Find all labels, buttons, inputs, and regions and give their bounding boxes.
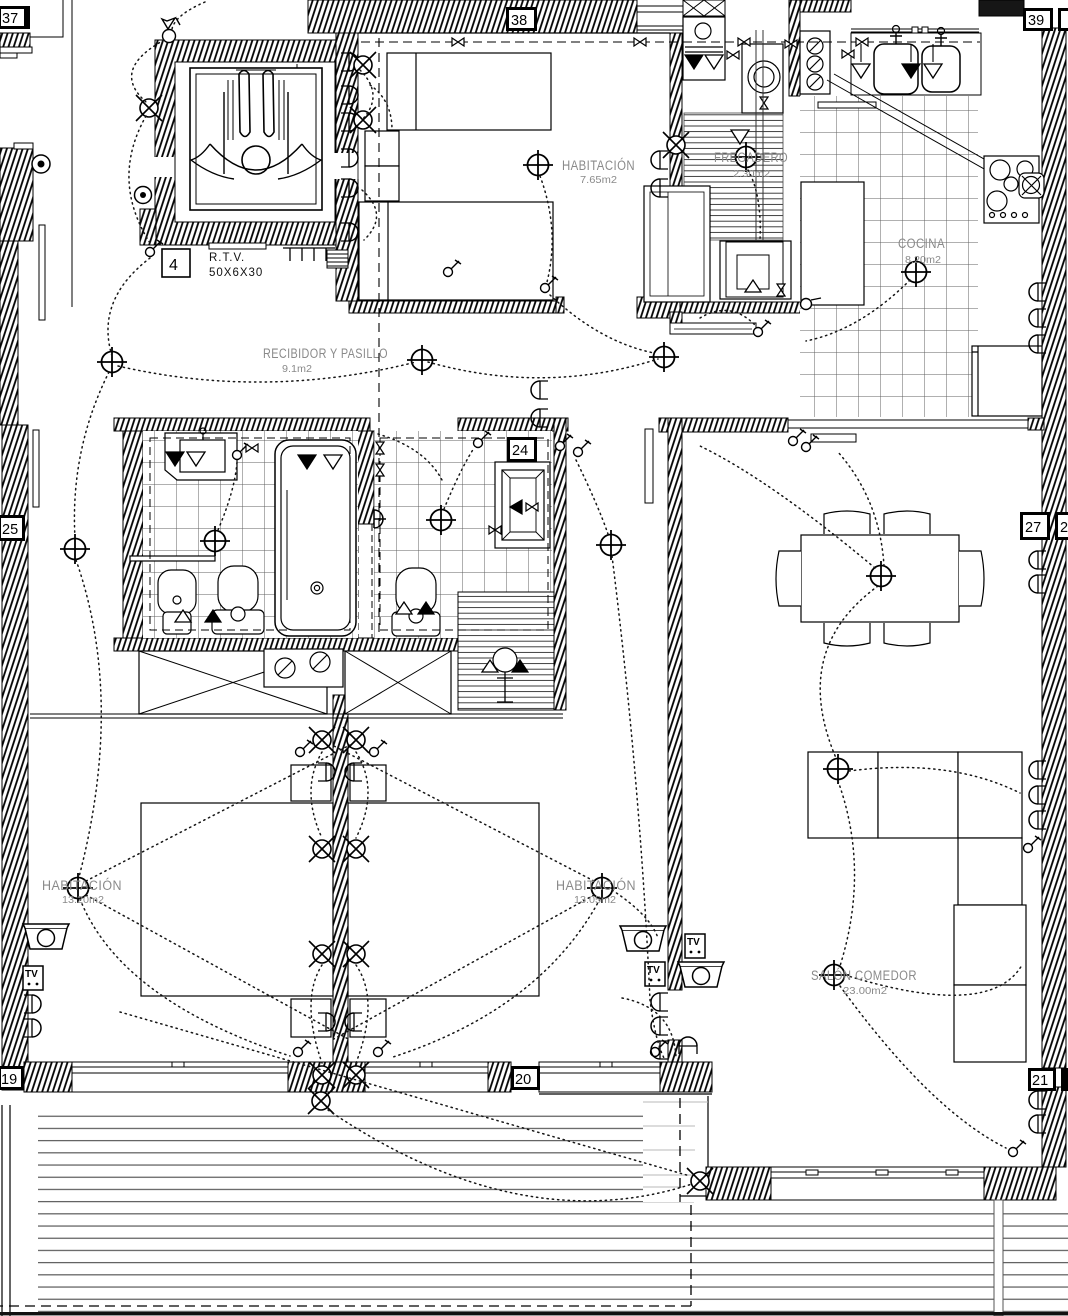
svg-text:9.1m2: 9.1m2 bbox=[282, 363, 312, 375]
svg-text:23.00m2: 23.00m2 bbox=[843, 985, 887, 997]
svg-text:R.T.V.: R.T.V. bbox=[209, 252, 245, 264]
svg-text:8.20m2: 8.20m2 bbox=[905, 254, 941, 266]
svg-text:50X6X30: 50X6X30 bbox=[209, 267, 263, 279]
svg-text:FREGADERO: FREGADERO bbox=[714, 150, 788, 165]
svg-text:39: 39 bbox=[1028, 13, 1044, 29]
svg-text:RECIBIDOR Y PASILLO: RECIBIDOR Y PASILLO bbox=[263, 346, 388, 361]
svg-text:24: 24 bbox=[512, 443, 528, 459]
svg-text:38: 38 bbox=[511, 13, 527, 29]
svg-text:37: 37 bbox=[2, 11, 18, 27]
svg-text:13.05m2: 13.05m2 bbox=[574, 894, 616, 906]
svg-text:COCINA: COCINA bbox=[898, 236, 945, 251]
svg-text:27: 27 bbox=[1025, 520, 1041, 536]
svg-text:13.20m2: 13.20m2 bbox=[62, 894, 104, 906]
svg-text:HABITACIÓN: HABITACIÓN bbox=[562, 158, 635, 173]
svg-text:21: 21 bbox=[1032, 1073, 1048, 1089]
svg-text:4: 4 bbox=[169, 257, 178, 274]
svg-text:25: 25 bbox=[2, 522, 18, 538]
svg-text:20: 20 bbox=[515, 1072, 531, 1088]
svg-text:7.65m2: 7.65m2 bbox=[580, 174, 617, 186]
svg-text:19: 19 bbox=[1, 1072, 17, 1088]
svg-text:2: 2 bbox=[1060, 520, 1068, 536]
svg-text:HABITACIÓN: HABITACIÓN bbox=[42, 878, 122, 893]
svg-text:HABITACIÓN: HABITACIÓN bbox=[556, 878, 636, 893]
svg-text:SALÓN COMEDOR: SALÓN COMEDOR bbox=[811, 968, 917, 983]
svg-text:2.30m2: 2.30m2 bbox=[733, 168, 770, 180]
